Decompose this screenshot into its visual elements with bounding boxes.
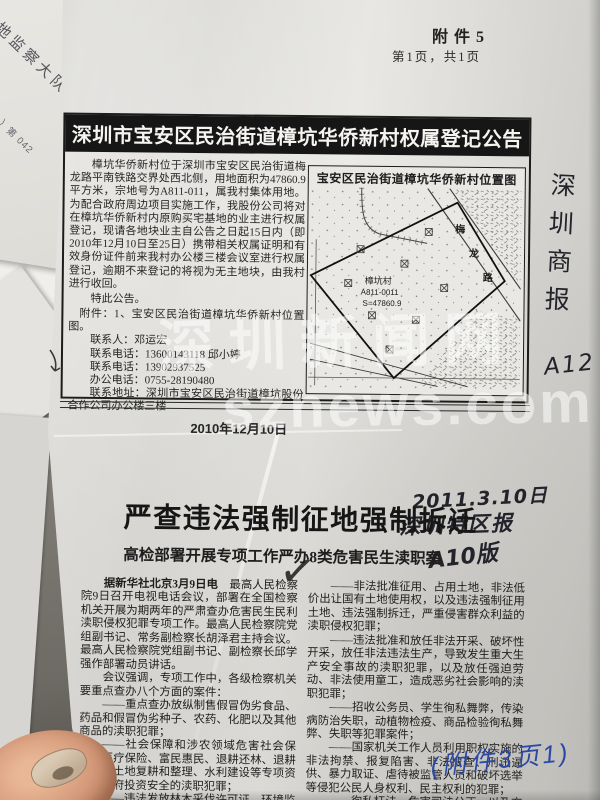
notice-body-text: 樟坑华侨新村位于深圳市宝安区民治街道梅龙路平南铁路交界处西北侧，用地面积为478… [69, 159, 306, 293]
photographed-document: 土地监察大队 ）第 042 附件5 第1页，共1页 深圳市宝安区民治街道樟坑华侨… [0, 0, 600, 800]
article-paragraph: ——违法批准和放任非法开采、破坏性开采，放任非法违法生产，导致发生重大生产安全事… [307, 634, 525, 704]
map-title: 宝安区民治街道樟坑华侨新村位置图 [309, 169, 525, 188]
map-road-char-3: 路 [483, 271, 494, 284]
handwritten-checkmark: ✓ [276, 544, 319, 599]
notice-headline: 深圳市宝安区民治街道樟坑华侨新村权属登记公告 [65, 115, 529, 157]
map-road-char-1: 梅 [455, 223, 465, 236]
map-road-char-2: 龙 [468, 247, 479, 260]
notice-article: 深圳市宝安区民治街道樟坑华侨新村权属登记公告 樟坑华侨新村位于深圳市宝安区民治街… [61, 113, 532, 404]
article-headline: 严查违法强制征地强制拆迁 [124, 496, 526, 541]
pen-arrow-mark [44, 348, 66, 376]
map-drawing: 樟坑村 A811-0011 S=47860.9 梅 龙 路 [308, 187, 522, 391]
article-paragraph: ——非法批准征用、占用土地，非法低价出让国有土地使用权，以及违法强制征用土地、违… [307, 580, 525, 636]
location-map: 宝安区民治街道樟坑华侨新村位置图 [306, 165, 526, 396]
attachment-number: 附件5 [432, 23, 490, 47]
article-subtitle: 高检部署开展专项工作严办8类危害民生渎职案 [123, 543, 525, 570]
map-parcel-id: A811-0011 [361, 288, 400, 297]
paper-edge-right [588, 0, 600, 800]
page-indicator: 第1页，共1页 [392, 46, 481, 65]
notice-body-column: 樟坑华侨新村位于深圳市宝安区民治街道梅龙路平南铁路交界处西北侧，用地面积为478… [67, 159, 306, 438]
dateline: 据新华社北京3月9日电 [104, 578, 218, 591]
article-paragraph: 会议强调，专项工作中，各级检察机关要重点查办八个方面的案件： [80, 671, 297, 701]
article-paragraph: ——招收公务员、学生徇私舞弊，传染病防治失职，动植物检疫、商品检验徇私舞弊、失职… [306, 701, 523, 744]
paragraph-text: 最高人民检察院9日召开电视电话会议，部署在全国检察机关开展为期两年的严肃查办危害… [80, 579, 298, 671]
map-parcel-name: 樟坑村 [365, 275, 392, 286]
handwritten-page-a12: A12 [543, 349, 596, 380]
notice-closing: 特此公告。 [68, 292, 304, 308]
article-paragraph: 据新华社北京3月9日电 最高人民检察院9日召开电视电话会议，部署在全国检察机关开… [80, 577, 298, 674]
map-parcel-area: S=47860.9 [362, 299, 402, 308]
notice-date: 2010年12月10日 [67, 419, 303, 437]
notice-attachment-line: 附件：1、宝安区民治街道樟坑华侨新村位置图。 [68, 308, 304, 337]
article-paragraph: ——重点查办放纵制售假冒伪劣食品、药品和假冒伪劣种子、农药、化肥以及其他商品的渎… [79, 698, 296, 741]
paper-stack-strip [0, 413, 52, 757]
